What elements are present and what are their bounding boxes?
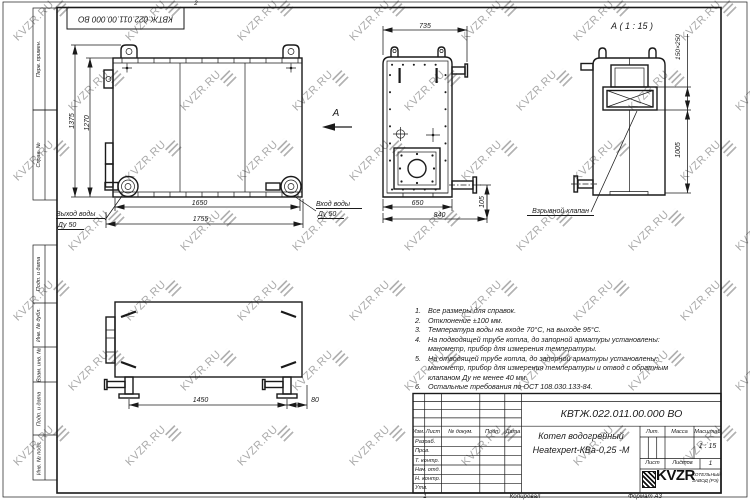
frame-label-podp1: Подп. и дата (34, 245, 44, 303)
notes-list: 1.Все размеры для справок. 2.Отклонение … (408, 306, 668, 392)
kvzr-logo-subtext-line1: КОТЕЛЬНЫЙ (692, 472, 722, 477)
dim-front-w2: 840 (417, 212, 462, 219)
outlet-label-line1: Выход воды (56, 211, 105, 219)
titleblock-row-nachotd: Нач. отд. (415, 467, 445, 473)
dim-front-h: 105 (478, 177, 488, 227)
titleblock-row-prov: Пров. (415, 448, 445, 454)
dim-plan-off: 80 (300, 397, 330, 404)
scale-label: Масштаб (694, 429, 721, 435)
inlet-label-line2: Ду 50 (318, 211, 344, 219)
top-stamp-doc-number: КВТЖ.022.011.00.000 ВО (67, 8, 184, 30)
dim-side-h1: 1375 (68, 96, 78, 146)
product-name-line2: Heatexpert-КВа-0,25 -М (522, 445, 640, 455)
view-arrow-label: А (329, 108, 343, 119)
dim-side-h2: 1270 (83, 98, 93, 148)
dim-front-w1: 650 (395, 200, 440, 207)
note-5: 5.На отводящей трубе котла, до запорной … (408, 354, 668, 383)
frame-label-sprav: Справ. № (34, 110, 44, 200)
detail-view-title: А ( 1 : 15 ) (593, 21, 671, 31)
copied-label: Копировал (490, 493, 560, 500)
titleblock-col-list: Лист (425, 429, 441, 435)
frame-label-vzam: Взам. инв. № (34, 347, 44, 382)
sheets-label: Листов (666, 460, 699, 466)
titleblock-col-doc: № докум. (442, 429, 479, 435)
inlet-label-line1: Вход воды (316, 201, 362, 209)
frame-label-inv-dubl: Инв. № дубл. (34, 303, 44, 347)
titleblock-row-razrab: Разраб. (415, 439, 445, 445)
frame-label-podp2: Подп. и дата (34, 382, 44, 435)
frame-label-perv: Перв. примен. (34, 8, 44, 110)
lit-label: Лит. (640, 429, 665, 435)
kvzr-logo-text: KVZR (656, 467, 695, 484)
sheets-value: 1 (700, 460, 721, 467)
titleblock-row-nkontr: Н. контр. (415, 476, 445, 482)
copy-number: 1 (418, 493, 432, 500)
titleblock-doc-number: КВТЖ.022.011.00.000 ВО (522, 402, 721, 426)
kvzr-logo-icon (642, 471, 656, 488)
text-layer: КВТЖ.022.011.00.000 ВО 2 Перв. примен. С… (0, 0, 750, 500)
outlet-label-line2: Ду 50 (58, 222, 84, 230)
zone-mark: 2 (190, 0, 202, 7)
mass-label: Масса (665, 429, 694, 435)
dim-valve-size: 150×250 (674, 22, 684, 72)
note-3: 3.Температура воды на входе 70°С, на вых… (408, 325, 668, 335)
dim-side-w1: 1650 (177, 200, 222, 207)
note-1: 1.Все размеры для справок. (408, 306, 668, 316)
dim-detail-h: 1005 (674, 125, 684, 175)
note-6: 6.Остальные требования по ОСТ 108.030.13… (408, 382, 668, 392)
titleblock-col-podp: Подп. (480, 429, 505, 435)
sheet-label: Лист (641, 460, 664, 466)
dim-front-width: 735 (405, 23, 445, 30)
kvzr-logo-subtext: КОТЕЛЬНЫЙ ЗАВОД (РЭ) (692, 472, 722, 483)
titleblock-row-tkontr: Т. контр. (415, 458, 445, 464)
product-name-line1: Котел водогрейный (522, 431, 640, 441)
note-4: 4.На подводящей трубе котла, до запорной… (408, 335, 668, 354)
dim-plan-w: 1450 (178, 397, 223, 404)
dim-side-w2: 1755 (178, 216, 223, 223)
kvzr-logo-subtext-line2: ЗАВОД (РЭ) (692, 478, 719, 483)
scale-value: 1 : 15 (694, 443, 721, 450)
frame-label-inv-podl: Инв. № подл. (34, 435, 44, 480)
drawing-sheet: KVZR.RUKVZR.RUKVZR.RUKVZR.RUKVZR.RUKVZR.… (0, 0, 750, 500)
titleblock-col-izm: Изм. (412, 429, 425, 435)
explosion-valve-label: Взрывной клапан (527, 208, 594, 216)
titleblock-row-utv: Утв. (415, 485, 445, 491)
note-2: 2.Отклонение ±100 мм. (408, 316, 668, 326)
titleblock-col-data: Дата (505, 429, 521, 435)
format-label: Формат А3 (610, 493, 680, 500)
